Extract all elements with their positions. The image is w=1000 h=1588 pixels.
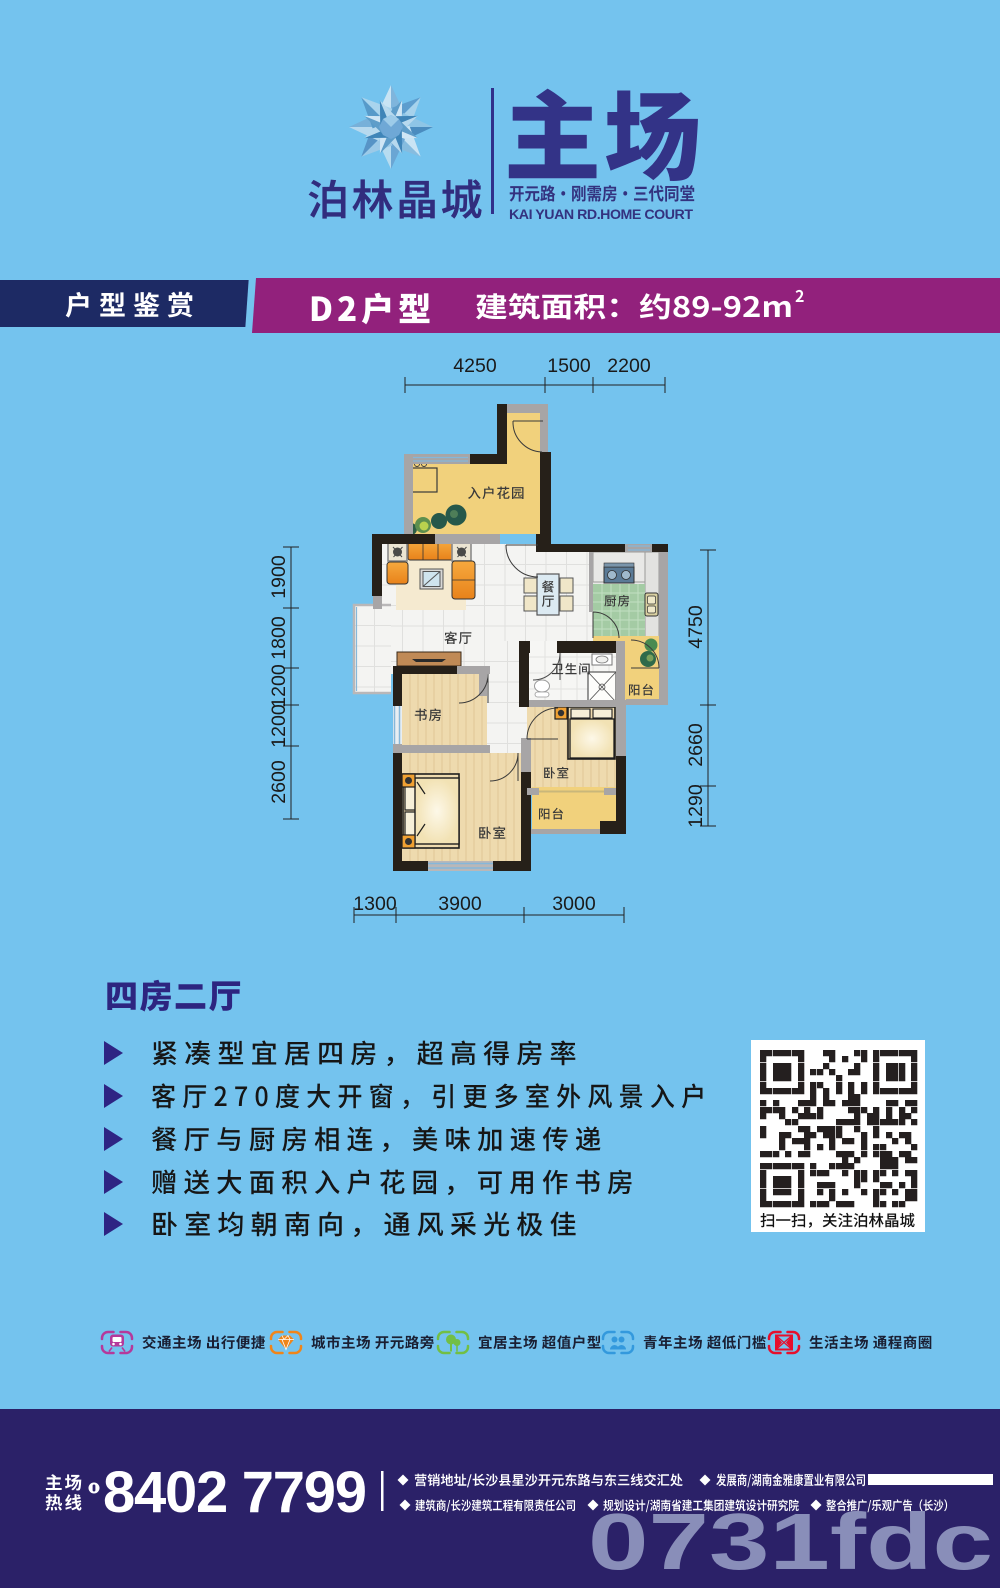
svg-text:1300: 1300: [353, 893, 397, 915]
svg-text:1500: 1500: [547, 355, 591, 377]
svg-text:1900: 1900: [268, 555, 290, 599]
svg-text:2200: 2200: [607, 355, 651, 377]
svg-text:2660: 2660: [685, 723, 707, 767]
svg-text:4250: 4250: [453, 355, 497, 377]
svg-text:KAI YUAN RD.HOME COURT: KAI YUAN RD.HOME COURT: [509, 207, 693, 223]
svg-text:8402 7799: 8402 7799: [103, 1460, 367, 1525]
svg-text:2600: 2600: [268, 760, 290, 804]
svg-text:1200: 1200: [268, 704, 290, 748]
svg-text:3000: 3000: [552, 893, 596, 915]
svg-text:1290: 1290: [685, 784, 707, 828]
svg-text:1200: 1200: [268, 664, 290, 708]
svg-text:3900: 3900: [438, 893, 482, 915]
svg-text:1800: 1800: [268, 616, 290, 660]
svg-text:4750: 4750: [685, 605, 707, 649]
